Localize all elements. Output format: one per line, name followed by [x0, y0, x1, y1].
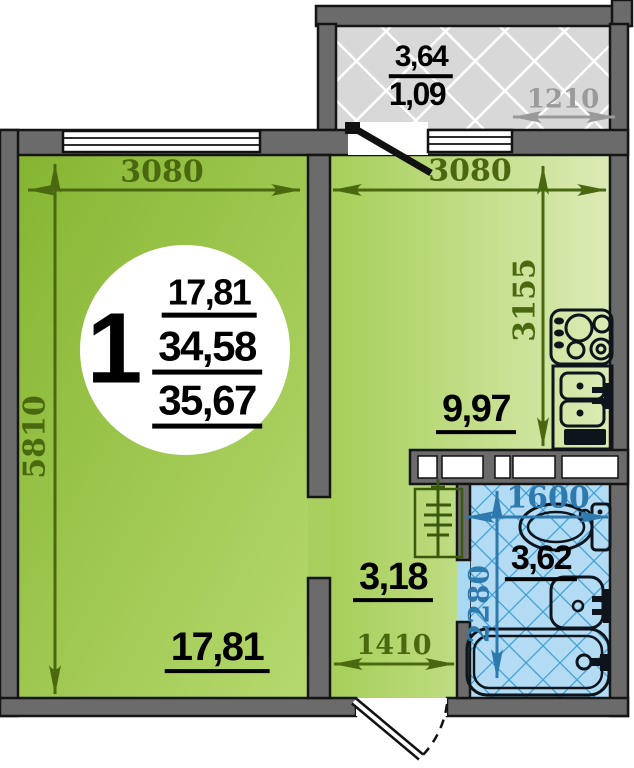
balcony-corner-post	[612, 0, 632, 26]
unit-living-area: 17,81	[162, 275, 257, 318]
living-depth-dim-label: 5810	[21, 395, 52, 479]
living-width-dim-label: 3080	[120, 158, 204, 189]
kitchen-depth-dim-label: 3155	[511, 258, 542, 342]
middle-wall-upper	[308, 155, 330, 497]
middle-wall-lower	[308, 578, 330, 698]
wardrobe-sections	[418, 456, 618, 478]
kitchen-width-dim-label: 3080	[428, 157, 512, 188]
kitchen-window-icon	[428, 130, 512, 152]
unit-total-area-with-balcony: 35,67	[152, 380, 262, 429]
hallway-width-dim-label: 1410	[356, 632, 431, 660]
balcony-width-dim-label: 1210	[527, 87, 599, 114]
balcony-left-wall	[318, 24, 336, 130]
balcony-area-reduced-label: 1,09	[383, 78, 451, 112]
living-room-window-icon	[63, 131, 260, 152]
bathroom-wall-upper	[457, 484, 470, 560]
floor-plan: 1 17,81 34,58 35,67 3,64 1,09 17,81 9,97…	[0, 0, 634, 768]
bottom-wall-right	[447, 698, 628, 716]
unit-total-area: 34,58	[152, 326, 262, 375]
hallway-area-label: 3,18	[353, 558, 433, 602]
bathroom-depth-dim-label: 2280	[466, 565, 495, 643]
balcony-top-wall	[316, 6, 630, 26]
bottom-wall-left	[0, 698, 356, 716]
living-room-doorway	[308, 497, 330, 578]
living-room-area-label: 17,81	[165, 627, 270, 673]
balcony-area-label: 3,64	[389, 42, 453, 78]
kitchen-area-label: 9,97	[436, 390, 516, 434]
unit-number: 1	[81, 298, 146, 401]
left-wall	[0, 130, 18, 716]
bathroom-area-label: 3,62	[505, 541, 577, 581]
bathroom-width-dim-label: 1600	[506, 484, 590, 515]
